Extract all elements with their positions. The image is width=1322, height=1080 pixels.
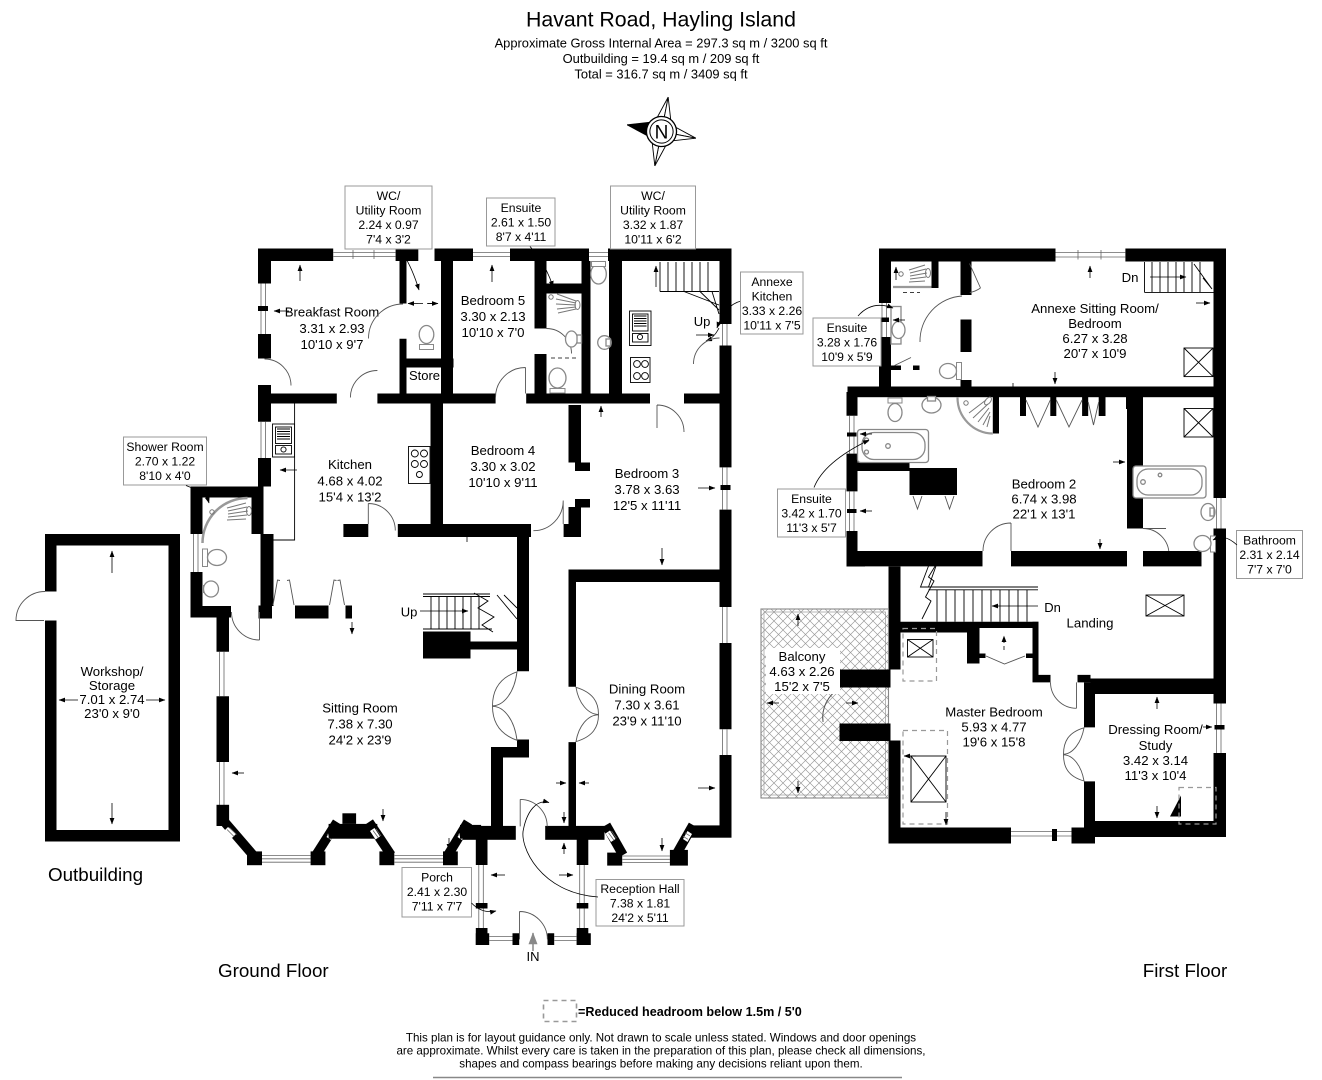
svg-text:3.30 x 2.13: 3.30 x 2.13 bbox=[460, 309, 525, 324]
svg-text:3.28 x 1.76: 3.28 x 1.76 bbox=[817, 336, 878, 350]
svg-text:shapes and compass bearings be: shapes and compass bearings before makin… bbox=[459, 1058, 862, 1071]
svg-text:Approximate Gross Internal Are: Approximate Gross Internal Area = 297.3 … bbox=[495, 36, 828, 51]
svg-text:7'7 x 7'0: 7'7 x 7'0 bbox=[1247, 563, 1292, 577]
svg-text:7.01 x 2.74: 7.01 x 2.74 bbox=[79, 692, 144, 707]
svg-text:2.70 x 1.22: 2.70 x 1.22 bbox=[135, 455, 196, 469]
svg-text:=Reduced headroom below 1.5m /: =Reduced headroom below 1.5m / 5'0 bbox=[578, 1005, 802, 1019]
svg-text:Balcony: Balcony bbox=[779, 649, 826, 664]
svg-text:6.74 x 3.98: 6.74 x 3.98 bbox=[1011, 492, 1076, 507]
svg-text:24'2 x 23'9: 24'2 x 23'9 bbox=[329, 733, 392, 748]
svg-text:Ensuite: Ensuite bbox=[501, 201, 542, 215]
svg-text:Utility Room: Utility Room bbox=[356, 204, 422, 218]
svg-text:Storage: Storage bbox=[89, 678, 135, 693]
svg-text:Porch: Porch bbox=[421, 871, 453, 885]
svg-text:Dn: Dn bbox=[1044, 600, 1061, 615]
svg-text:3.33 x 2.26: 3.33 x 2.26 bbox=[742, 304, 803, 318]
svg-text:2.61 x 1.50: 2.61 x 1.50 bbox=[491, 216, 552, 230]
svg-text:Bedroom 2: Bedroom 2 bbox=[1012, 477, 1077, 492]
svg-text:23'9 x 11'10: 23'9 x 11'10 bbox=[612, 714, 681, 729]
svg-text:20'7 x 10'9: 20'7 x 10'9 bbox=[1064, 346, 1127, 361]
svg-text:10'11 x 7'5: 10'11 x 7'5 bbox=[743, 319, 801, 333]
svg-text:Outbuilding: Outbuilding bbox=[48, 864, 143, 885]
svg-text:Store: Store bbox=[409, 368, 440, 383]
svg-text:7.38 x 7.30: 7.38 x 7.30 bbox=[327, 717, 392, 732]
svg-text:Bedroom 3: Bedroom 3 bbox=[615, 466, 680, 481]
svg-text:Workshop/: Workshop/ bbox=[81, 664, 144, 679]
svg-text:are approximate. Whilst every: are approximate. Whilst every care is ta… bbox=[396, 1045, 925, 1058]
svg-text:First Floor: First Floor bbox=[1143, 960, 1228, 981]
svg-text:WC/: WC/ bbox=[377, 189, 401, 203]
svg-text:8'7 x 4'11: 8'7 x 4'11 bbox=[496, 230, 547, 244]
svg-text:This plan is for layout guidan: This plan is for layout guidance only. N… bbox=[406, 1032, 916, 1045]
svg-text:3.42 x 3.14: 3.42 x 3.14 bbox=[1123, 753, 1188, 768]
svg-text:22'1 x 13'1: 22'1 x 13'1 bbox=[1013, 507, 1076, 522]
svg-text:Dressing Room/: Dressing Room/ bbox=[1108, 722, 1203, 737]
svg-text:Total = 316.7 sq m / 3409 sq f: Total = 316.7 sq m / 3409 sq ft bbox=[574, 67, 747, 82]
svg-text:3.32 x 1.87: 3.32 x 1.87 bbox=[623, 218, 684, 232]
svg-text:Ensuite: Ensuite bbox=[827, 321, 868, 335]
svg-text:10'10 x 7'0: 10'10 x 7'0 bbox=[462, 325, 525, 340]
svg-text:Study: Study bbox=[1139, 738, 1173, 753]
svg-text:Annexe: Annexe bbox=[751, 275, 793, 289]
svg-text:3.31 x 2.93: 3.31 x 2.93 bbox=[299, 321, 364, 336]
svg-text:Bedroom 5: Bedroom 5 bbox=[461, 293, 526, 308]
svg-text:19'6 x 15'8: 19'6 x 15'8 bbox=[963, 735, 1026, 750]
svg-text:Utility Room: Utility Room bbox=[620, 204, 686, 218]
svg-text:Outbuilding = 19.4 sq m / 209: Outbuilding = 19.4 sq m / 209 sq ft bbox=[563, 51, 760, 66]
svg-text:Bathroom: Bathroom bbox=[1243, 534, 1296, 548]
svg-text:3.42 x 1.70: 3.42 x 1.70 bbox=[781, 507, 842, 521]
svg-text:WC/: WC/ bbox=[641, 189, 665, 203]
svg-text:Up: Up bbox=[401, 605, 418, 620]
svg-text:Kitchen: Kitchen bbox=[752, 290, 793, 304]
svg-text:Dn: Dn bbox=[1122, 270, 1139, 285]
svg-text:Master Bedroom: Master Bedroom bbox=[945, 705, 1042, 720]
svg-text:6.27 x 3.28: 6.27 x 3.28 bbox=[1062, 331, 1127, 346]
svg-text:10'9 x 5'9: 10'9 x 5'9 bbox=[821, 350, 873, 364]
svg-text:23'0 x 9'0: 23'0 x 9'0 bbox=[84, 706, 140, 721]
svg-text:Up: Up bbox=[694, 314, 711, 329]
svg-text:7.38 x 1.81: 7.38 x 1.81 bbox=[610, 897, 671, 911]
svg-text:15'4 x 13'2: 15'4 x 13'2 bbox=[319, 490, 382, 505]
svg-text:10'10 x 9'11: 10'10 x 9'11 bbox=[468, 475, 537, 490]
svg-text:Breakfast Room: Breakfast Room bbox=[285, 305, 380, 320]
svg-text:8'10 x 4'0: 8'10 x 4'0 bbox=[139, 469, 191, 483]
svg-text:2.41 x 2.30: 2.41 x 2.30 bbox=[407, 885, 468, 899]
svg-text:7'4 x 3'2: 7'4 x 3'2 bbox=[366, 233, 411, 247]
svg-text:Landing: Landing bbox=[1067, 616, 1114, 631]
svg-text:Reception Hall: Reception Hall bbox=[600, 882, 679, 896]
svg-text:Bedroom: Bedroom bbox=[1068, 316, 1122, 331]
svg-text:12'5 x 11'11: 12'5 x 11'11 bbox=[613, 498, 681, 513]
svg-text:Sitting Room: Sitting Room bbox=[322, 701, 398, 716]
svg-text:Dining Room: Dining Room bbox=[609, 682, 685, 697]
svg-text:7.30 x 3.61: 7.30 x 3.61 bbox=[614, 698, 679, 713]
svg-text:3.30 x 3.02: 3.30 x 3.02 bbox=[470, 459, 535, 474]
svg-text:Ground Floor: Ground Floor bbox=[218, 960, 329, 981]
svg-text:Bedroom 4: Bedroom 4 bbox=[471, 443, 536, 458]
svg-text:11'3 x 10'4: 11'3 x 10'4 bbox=[1125, 768, 1187, 783]
svg-text:Havant Road, Hayling Island: Havant Road, Hayling Island bbox=[526, 8, 796, 32]
svg-text:24'2 x 5'11: 24'2 x 5'11 bbox=[611, 911, 669, 925]
svg-text:10'11 x 6'2: 10'11 x 6'2 bbox=[624, 233, 682, 247]
svg-text:4.68 x 4.02: 4.68 x 4.02 bbox=[317, 474, 382, 489]
svg-text:IN: IN bbox=[527, 949, 540, 964]
svg-text:5.93 x 4.77: 5.93 x 4.77 bbox=[961, 720, 1026, 735]
svg-text:Ensuite: Ensuite bbox=[791, 492, 832, 506]
svg-text:3.78 x 3.63: 3.78 x 3.63 bbox=[614, 482, 679, 497]
svg-text:2.24 x 0.97: 2.24 x 0.97 bbox=[358, 218, 419, 232]
svg-text:4.63 x 2.26: 4.63 x 2.26 bbox=[769, 664, 834, 679]
svg-text:N: N bbox=[655, 123, 669, 144]
svg-text:2.31 x 2.14: 2.31 x 2.14 bbox=[1239, 548, 1300, 562]
svg-text:10'10 x 9'7: 10'10 x 9'7 bbox=[301, 337, 364, 352]
svg-text:11'3 x 5'7: 11'3 x 5'7 bbox=[786, 521, 837, 535]
svg-text:7'11 x 7'7: 7'11 x 7'7 bbox=[412, 900, 463, 914]
svg-text:Annexe Sitting Room/: Annexe Sitting Room/ bbox=[1031, 301, 1159, 316]
svg-text:Kitchen: Kitchen bbox=[328, 457, 372, 472]
svg-text:Shower Room: Shower Room bbox=[126, 440, 203, 454]
svg-text:15'2 x 7'5: 15'2 x 7'5 bbox=[774, 679, 830, 694]
